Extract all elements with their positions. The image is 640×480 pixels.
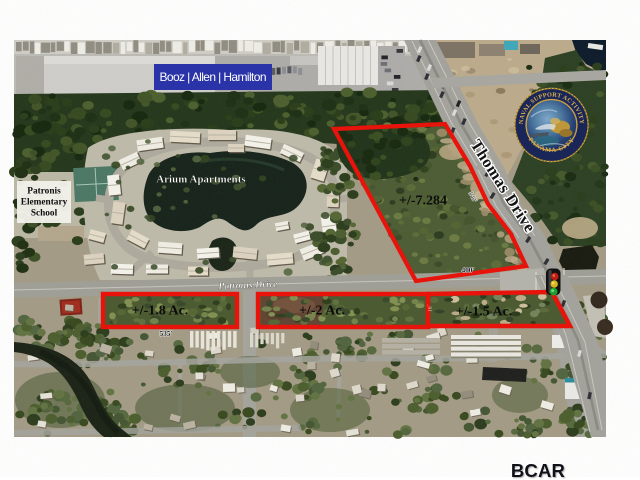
- svg-text:535': 535': [160, 330, 173, 338]
- svg-text:Patronis: Patronis: [27, 187, 61, 197]
- svg-text:+/-1.8 Ac.: +/-1.8 Ac.: [132, 304, 189, 319]
- svg-text:BCAR: BCAR: [511, 460, 565, 480]
- svg-text:+/-7.284: +/-7.284: [399, 194, 447, 209]
- svg-text:+/-2 Ac.: +/-2 Ac.: [299, 304, 345, 319]
- svg-text:Elementary: Elementary: [21, 198, 68, 208]
- svg-text:Arium Apartments: Arium Apartments: [156, 174, 245, 186]
- svg-text:+/-1.5 Ac.: +/-1.5 Ac.: [456, 305, 513, 320]
- svg-text:School: School: [31, 209, 58, 219]
- svg-text:Patronis Drive: Patronis Drive: [218, 279, 278, 292]
- svg-text:16‾: 16‾: [427, 304, 434, 312]
- svg-text:400': 400': [462, 267, 475, 275]
- svg-text:Booz | Allen | Hamilton: Booz | Allen | Hamilton: [160, 70, 267, 84]
